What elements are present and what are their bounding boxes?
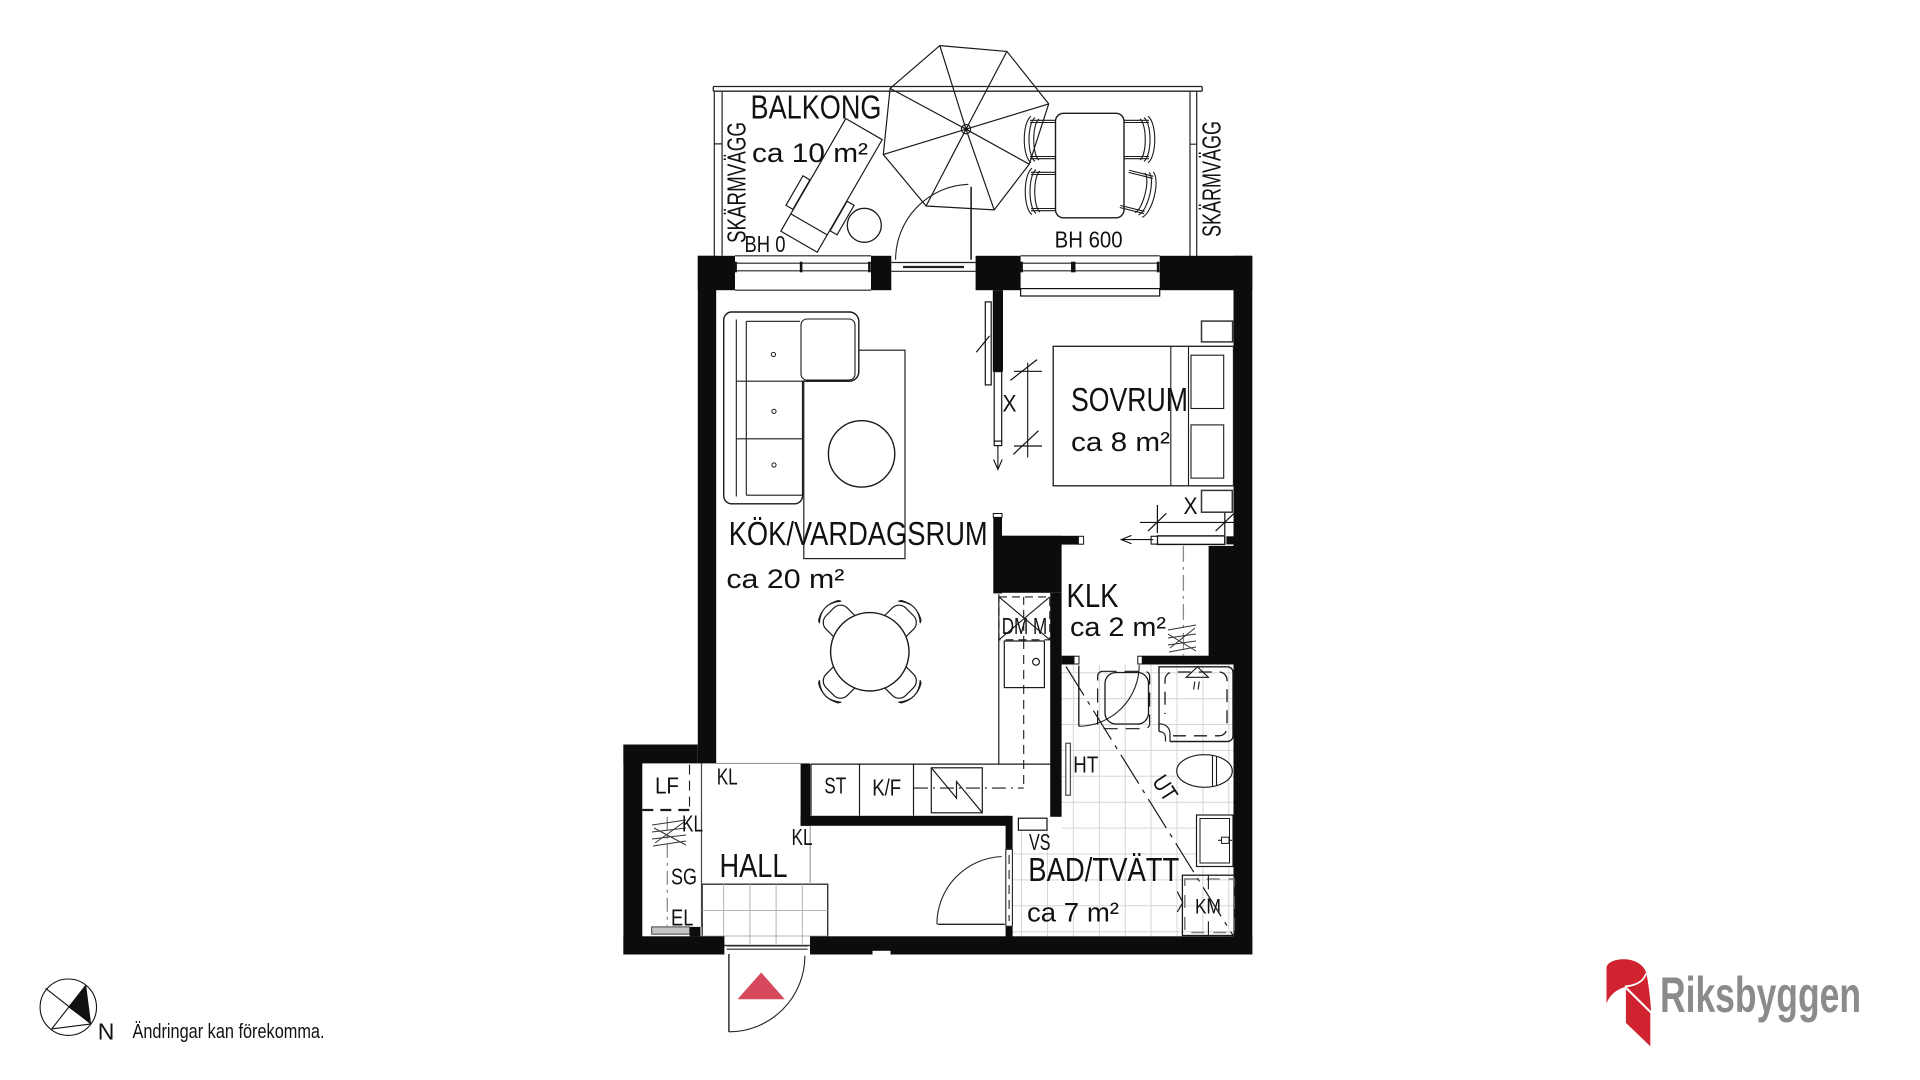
svg-text:HT: HT bbox=[1073, 752, 1098, 778]
svg-text:KM: KM bbox=[1195, 896, 1221, 919]
svg-text:ca 7 m²: ca 7 m² bbox=[1027, 898, 1119, 928]
svg-text:ST: ST bbox=[824, 773, 846, 799]
svg-text:BAD/TVÄTT: BAD/TVÄTT bbox=[1028, 851, 1179, 888]
svg-text:BALKONG: BALKONG bbox=[751, 89, 882, 126]
svg-text:Riksbyggen: Riksbyggen bbox=[1660, 967, 1861, 1023]
svg-text:EL: EL bbox=[671, 905, 694, 931]
svg-text:X: X bbox=[1184, 493, 1198, 520]
svg-text:SKÄRMVÄGG: SKÄRMVÄGG bbox=[1197, 121, 1227, 237]
svg-text:LF: LF bbox=[655, 773, 679, 799]
svg-text:SOVRUM: SOVRUM bbox=[1071, 381, 1188, 418]
svg-text:BH 600: BH 600 bbox=[1055, 227, 1123, 253]
svg-text:HALL: HALL bbox=[720, 847, 788, 884]
svg-text:KL: KL bbox=[717, 764, 738, 790]
svg-text:N: N bbox=[98, 1019, 115, 1045]
svg-text:KL: KL bbox=[682, 811, 703, 837]
svg-text:ca 2 m²: ca 2 m² bbox=[1070, 612, 1166, 642]
svg-text:ca 8 m²: ca 8 m² bbox=[1071, 427, 1170, 457]
svg-text:KLK: KLK bbox=[1067, 577, 1119, 614]
svg-text:ca 20 m²: ca 20 m² bbox=[726, 564, 844, 594]
svg-text:KL: KL bbox=[792, 824, 813, 850]
svg-text:ca 10 m²: ca 10 m² bbox=[752, 138, 868, 168]
svg-text:SKÄRMVÄGG: SKÄRMVÄGG bbox=[722, 122, 752, 243]
svg-text:VS: VS bbox=[1029, 829, 1051, 855]
svg-text:DM M: DM M bbox=[1002, 613, 1047, 639]
svg-text:Ändringar kan förekomma.: Ändringar kan förekomma. bbox=[133, 1021, 325, 1043]
svg-text:BH 0: BH 0 bbox=[745, 231, 786, 257]
svg-text:K/F: K/F bbox=[872, 775, 901, 801]
svg-text:X: X bbox=[1003, 391, 1017, 418]
svg-text:SG: SG bbox=[671, 864, 697, 890]
svg-text:KÖK/VARDAGSRUM: KÖK/VARDAGSRUM bbox=[729, 515, 988, 552]
